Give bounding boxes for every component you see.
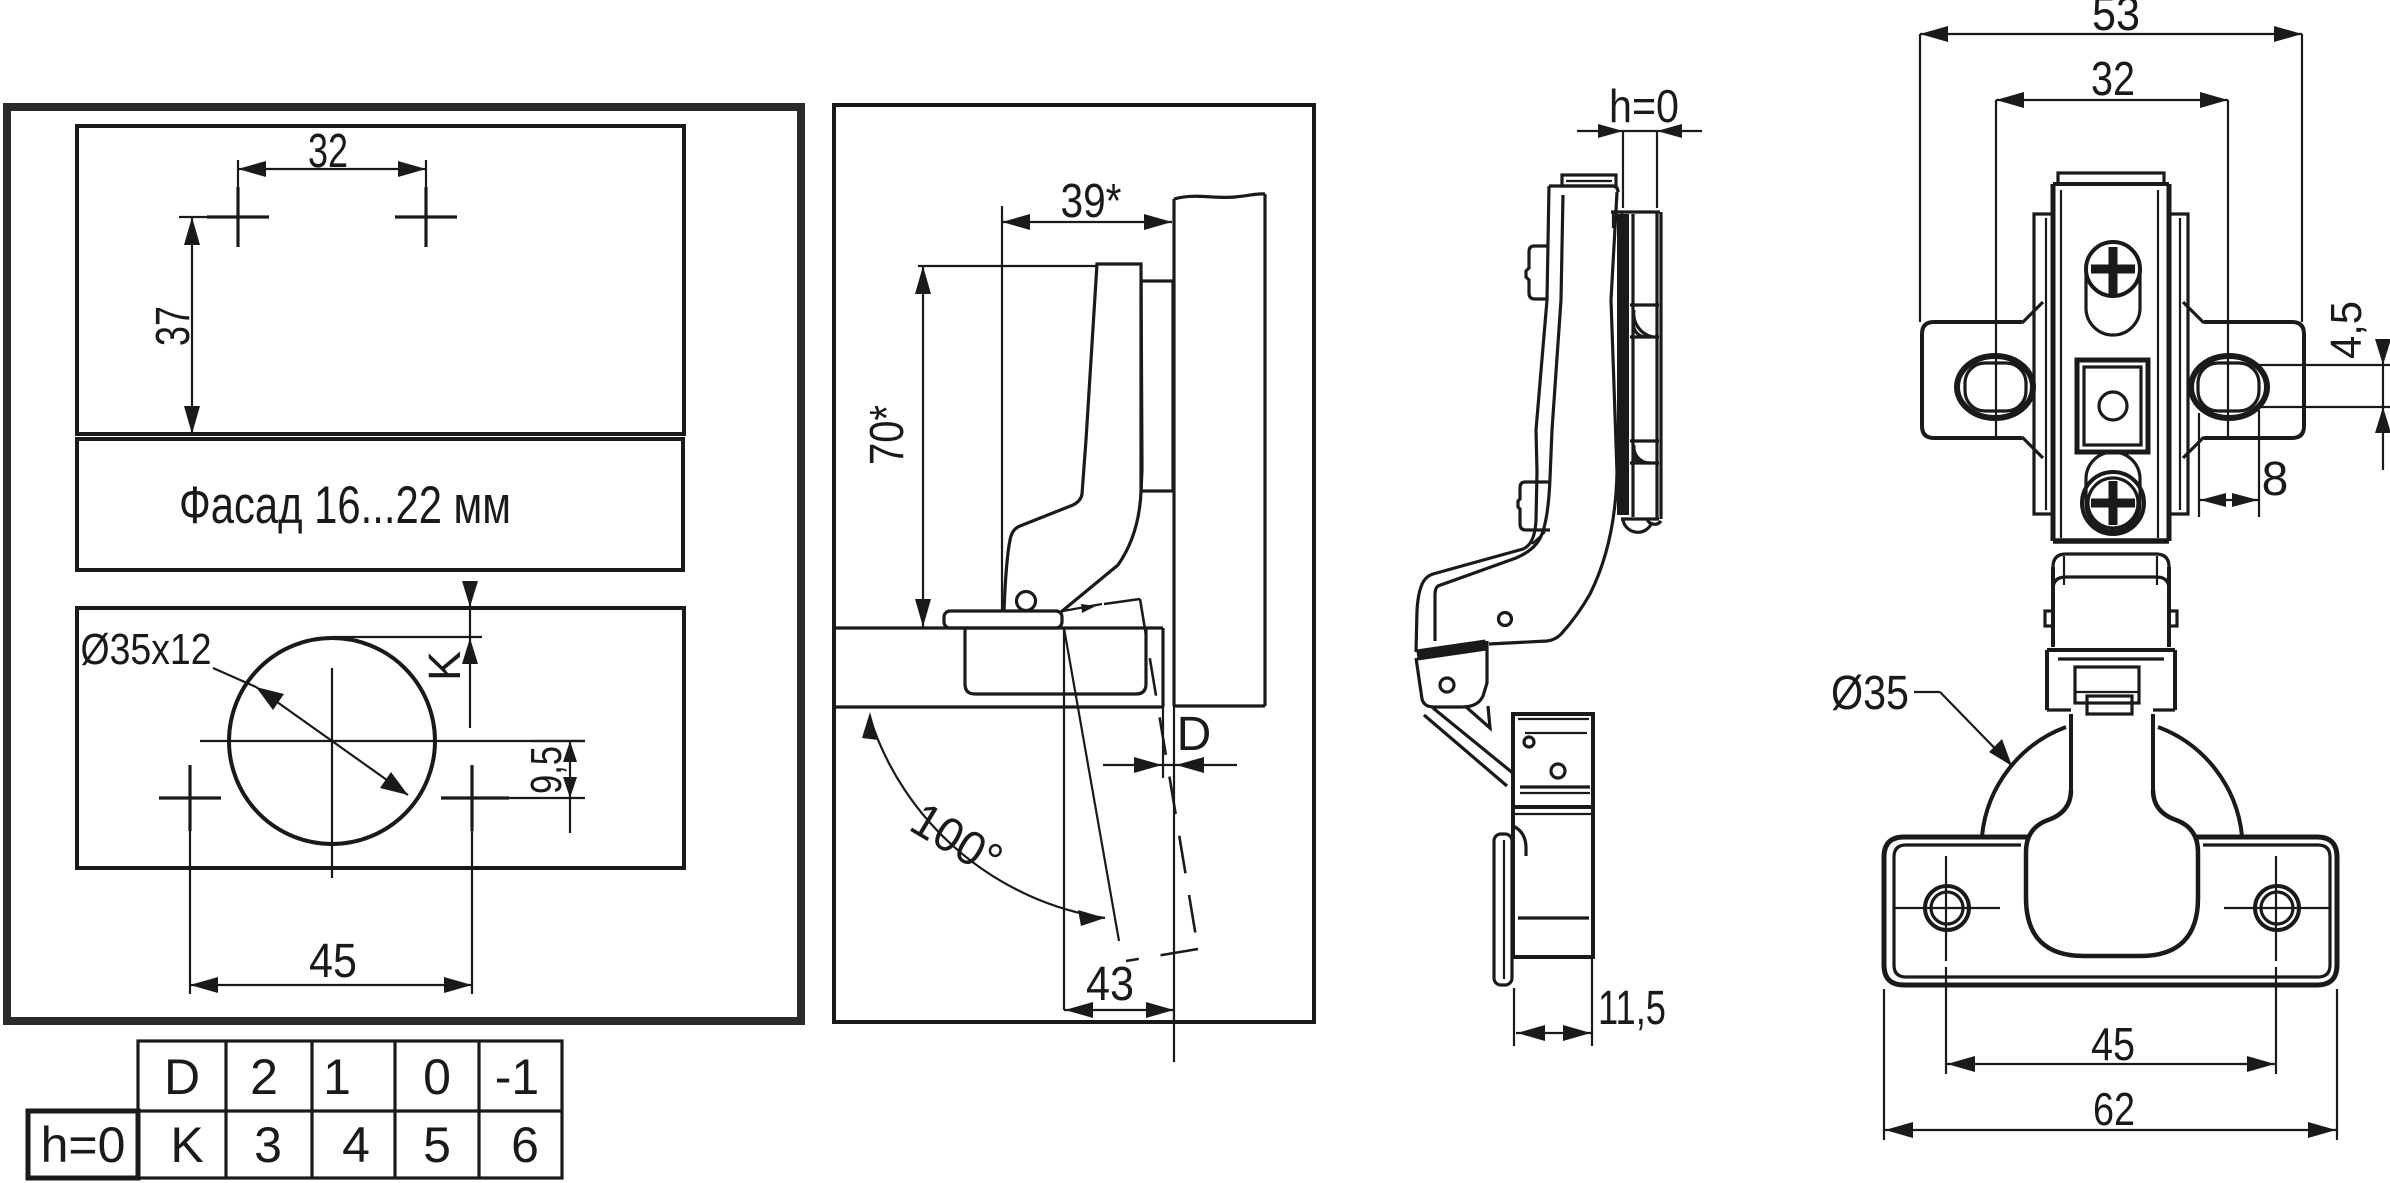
svg-text:3: 3 [254,1117,282,1173]
svg-text:8: 8 [2262,453,2289,506]
svg-text:h=0: h=0 [41,1117,126,1173]
svg-text:D: D [164,1049,200,1105]
svg-text:4: 4 [342,1117,370,1173]
svg-text:6: 6 [511,1117,539,1173]
svg-text:K: K [419,651,470,681]
svg-text:K: K [170,1117,203,1173]
svg-text:5: 5 [423,1117,451,1173]
svg-text:32: 32 [308,125,348,178]
svg-text:-1: -1 [495,1049,539,1105]
svg-text:62: 62 [2093,1083,2135,1135]
svg-text:h=0: h=0 [1609,80,1679,132]
svg-text:Фасад 16...22 мм: Фасад 16...22 мм [179,476,511,535]
svg-text:70*: 70* [861,405,914,465]
svg-text:Ø35: Ø35 [1831,667,1909,720]
svg-text:11,5: 11,5 [1598,982,1666,1035]
svg-text:39*: 39* [1061,175,1122,228]
svg-text:9,5: 9,5 [522,746,571,794]
svg-text:45: 45 [2091,1018,2135,1070]
svg-text:43: 43 [1086,958,1134,1011]
svg-text:D: D [1177,708,1212,761]
svg-text:0: 0 [423,1049,451,1105]
svg-text:4,5: 4,5 [2322,301,2371,359]
svg-text:32: 32 [2091,53,2135,106]
svg-text:Ø35x12: Ø35x12 [81,625,212,674]
svg-text:37: 37 [147,306,200,346]
svg-text:2: 2 [250,1049,278,1105]
svg-text:45: 45 [309,935,357,988]
svg-text:1: 1 [323,1049,351,1105]
